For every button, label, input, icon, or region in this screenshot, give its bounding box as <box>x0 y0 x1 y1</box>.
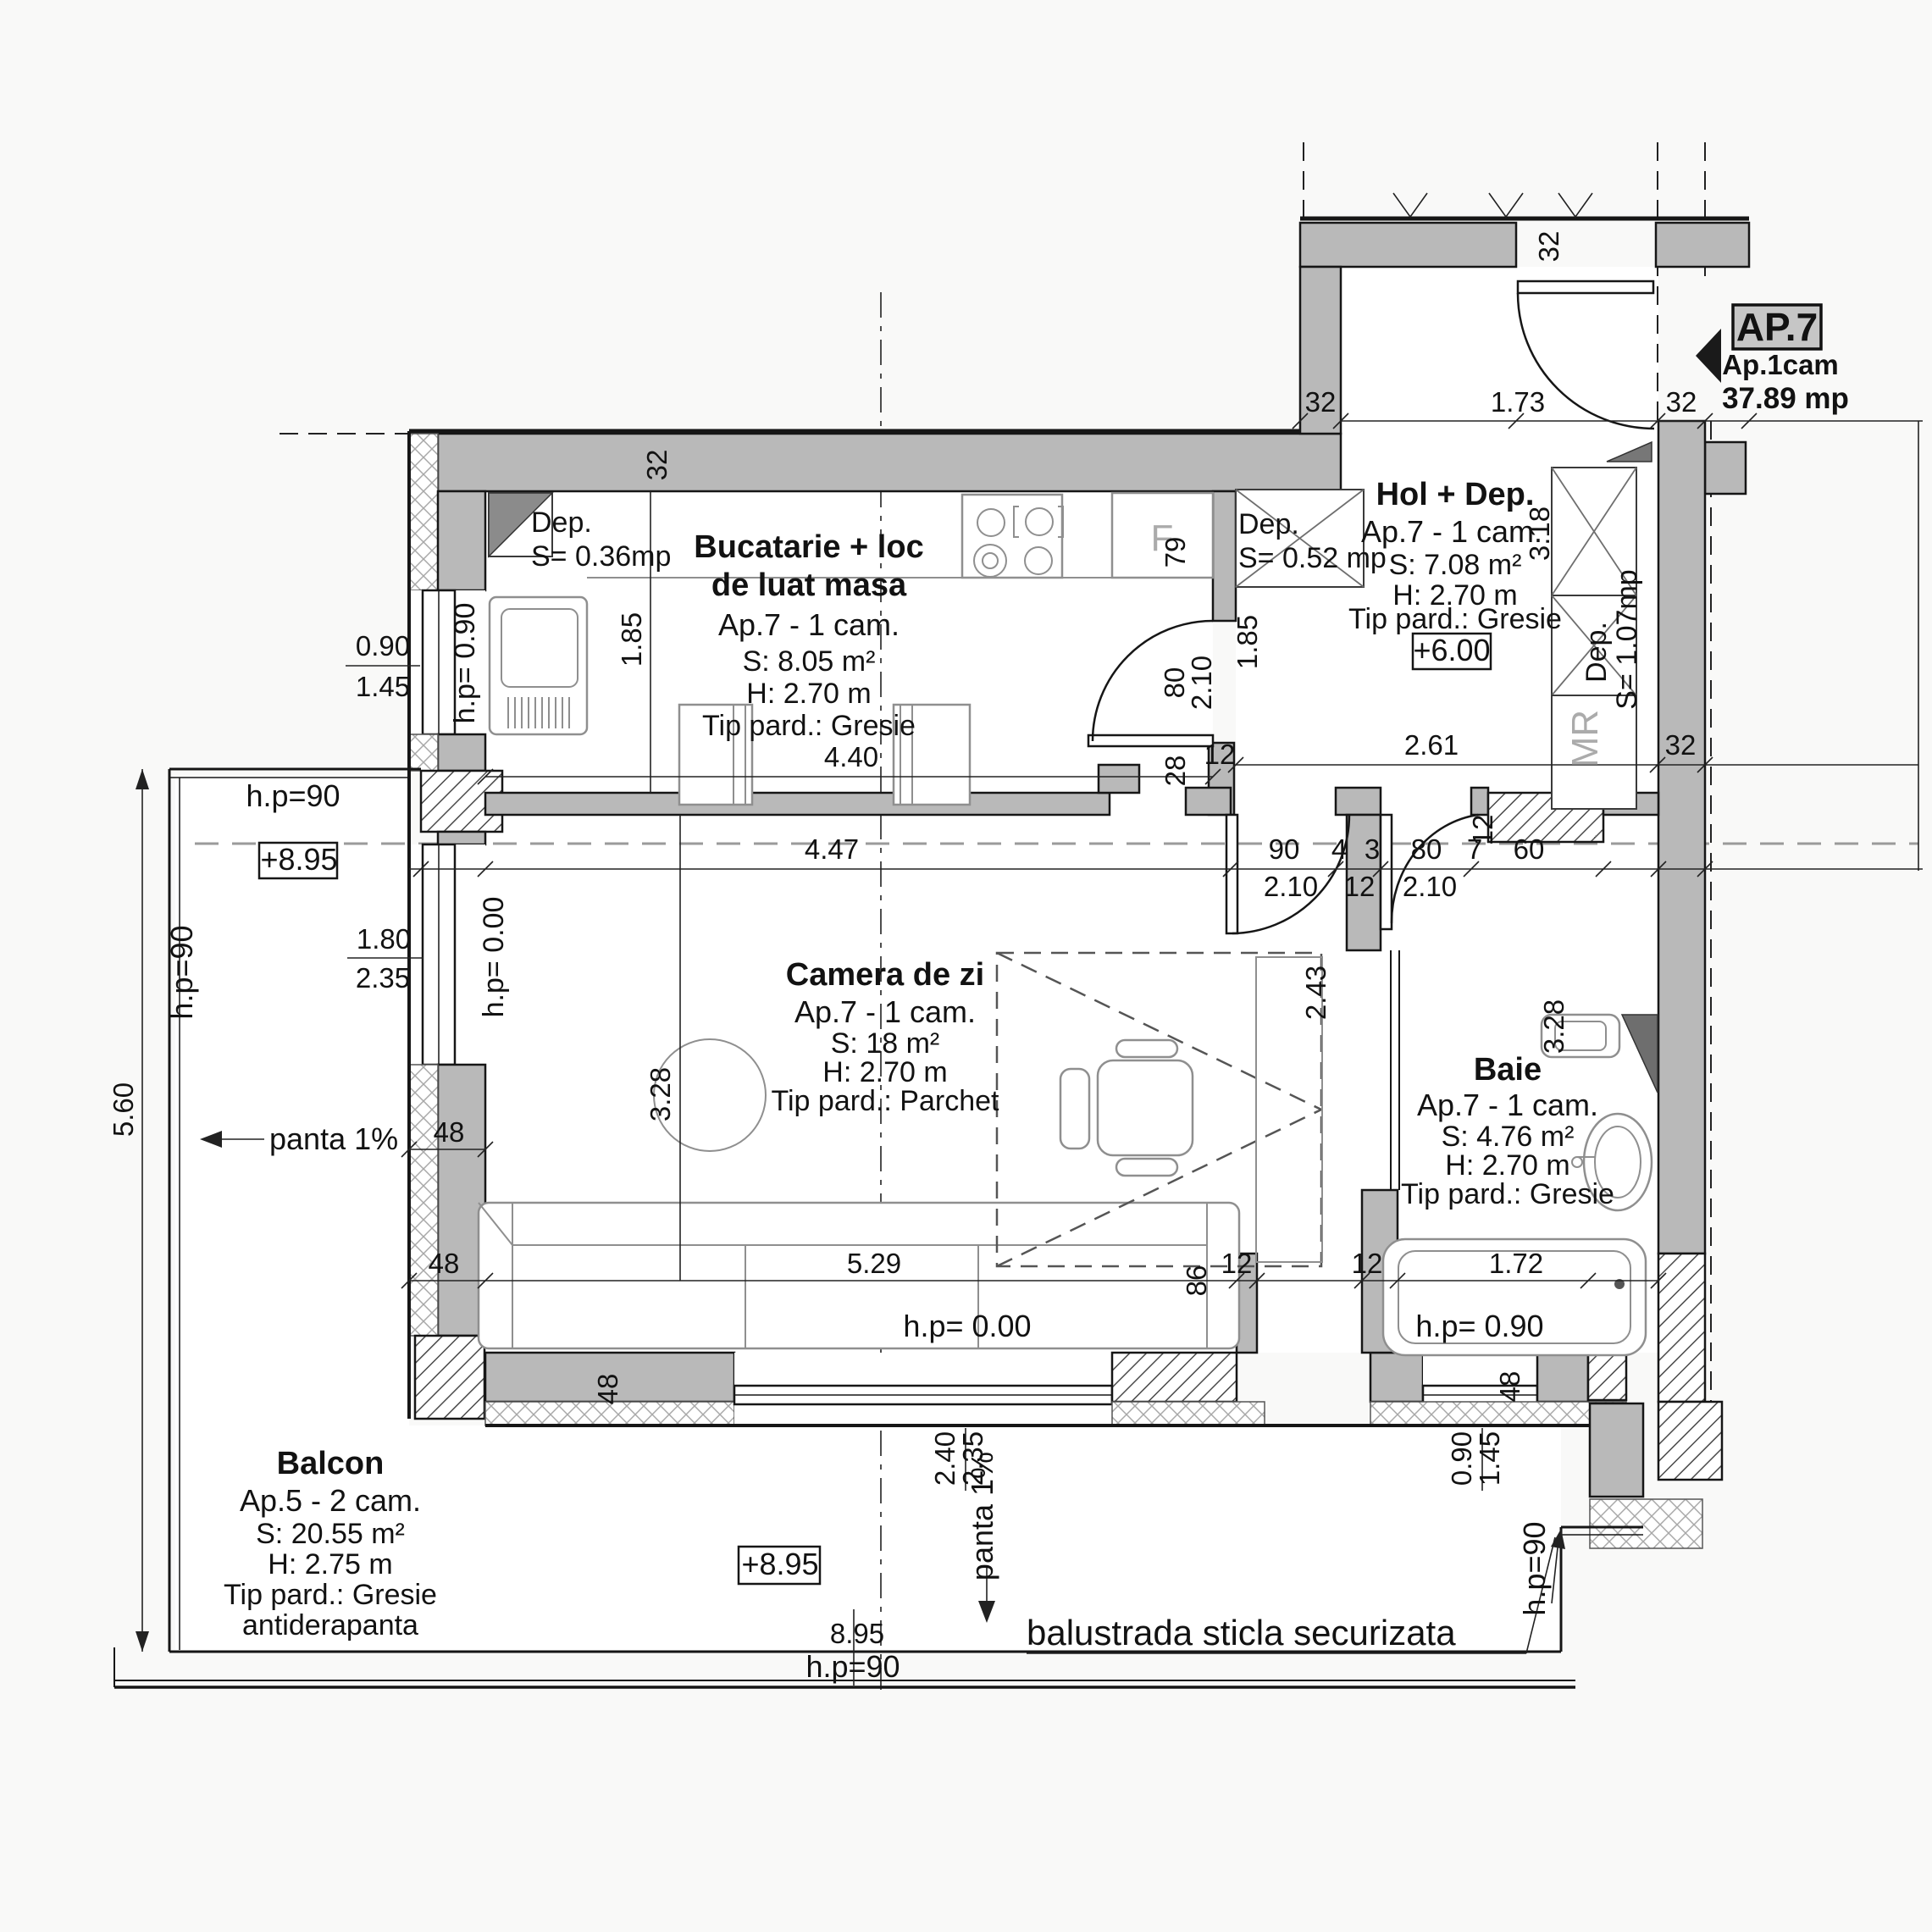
mr-label: MR <box>1564 710 1606 767</box>
dim-h-261: 2.61 <box>1404 729 1459 761</box>
kitchen-name-1: Bucatarie + loc <box>694 529 923 565</box>
dim-l-48a: 48 <box>429 1248 460 1279</box>
column-hatched-bottom <box>1112 1353 1237 1402</box>
hp90-right: h.p=90 <box>1517 1521 1552 1615</box>
dim-m-12a: 12 <box>1344 871 1376 902</box>
floor-plan-page: F <box>0 0 1932 1932</box>
marker-code: AP.7 <box>1736 305 1818 349</box>
hp90-balcony-top: h.p=90 <box>246 778 340 813</box>
hol-apt: Ap.7 - 1 cam. <box>1361 514 1542 549</box>
living-apt: Ap.7 - 1 cam. <box>794 994 976 1029</box>
dim-m-60: 60 <box>1514 833 1545 865</box>
dim-b-48: 48 <box>1494 1371 1525 1403</box>
wall-kitchen-hol <box>1213 491 1236 621</box>
hp-000-living: h.p= 0.00 <box>903 1309 1031 1343</box>
dim-kw-145: 1.45 <box>356 671 410 702</box>
hp-090-bath: h.p= 0.90 <box>1415 1309 1543 1343</box>
dim-m-210b: 2.10 <box>1403 871 1457 902</box>
dim-bw-145: 1.45 <box>1474 1431 1505 1486</box>
bath-floor: Tip pard.: Gresie <box>1401 1178 1614 1210</box>
dep1-area: S= 0.36mp <box>531 540 671 573</box>
balcony-floor-1: Tip pard.: Gresie <box>224 1579 437 1611</box>
bath-apt: Ap.7 - 1 cam. <box>1417 1088 1598 1122</box>
dim-b-172: 1.72 <box>1489 1248 1543 1279</box>
living-window-bottom <box>734 1353 1112 1425</box>
dim-h-318: 3.18 <box>1524 507 1555 561</box>
kitchen-height: H: 2.70 m <box>746 678 871 710</box>
dep3-area: S= 1.07mp <box>1611 569 1643 709</box>
dim-l-243: 2.43 <box>1300 966 1331 1020</box>
balcony-apt: Ap.5 - 2 cam. <box>240 1483 421 1518</box>
dim-l-240: 2.40 <box>929 1431 960 1486</box>
balcony-height: H: 2.75 m <box>268 1548 392 1580</box>
dim-l-12a: 12 <box>1221 1248 1253 1279</box>
wall-entrance-right <box>1656 223 1749 267</box>
dim-m-447: 4.47 <box>805 833 859 865</box>
dim-entrance-32: 32 <box>1533 231 1564 263</box>
dim-k-440: 4.40 <box>824 741 878 772</box>
dim-lw-235: 2.35 <box>356 962 410 994</box>
kitchen-name-2: de luat masa <box>711 567 907 603</box>
dim-top-32r: 32 <box>1666 386 1697 418</box>
dim-l-86: 86 <box>1181 1265 1212 1297</box>
wall-top-kitchen <box>438 434 1341 491</box>
balustrade-note: balustrada sticla securizata <box>1027 1613 1456 1652</box>
dim-k-79: 79 <box>1160 537 1191 568</box>
dim-l-12b: 12 <box>1352 1248 1383 1279</box>
dim-l-48b: 48 <box>434 1116 465 1148</box>
kitchen-apt: Ap.7 - 1 cam. <box>718 607 900 642</box>
dim-kw-090: 0.90 <box>356 630 410 662</box>
dim-m-210a: 2.10 <box>1264 871 1318 902</box>
hol-level: +6.00 <box>1413 633 1490 667</box>
balcony-floor-2: antiderapanta <box>242 1609 418 1641</box>
dim-h-185: 1.85 <box>1232 615 1263 669</box>
marker-unit: Ap.1cam <box>1722 349 1839 380</box>
dim-bot-895: 8.95 <box>830 1618 884 1649</box>
dim-l-235: 2.35 <box>957 1431 988 1486</box>
dim-k-12: 12 <box>1204 739 1236 770</box>
level-bottom: +8.95 <box>741 1547 818 1581</box>
dim-m-3: 3 <box>1365 833 1380 865</box>
panta-left: panta 1% <box>269 1121 398 1156</box>
bath-name: Baie <box>1474 1052 1542 1088</box>
dim-b-328: 3.28 <box>1538 999 1569 1054</box>
wall-right <box>1658 421 1705 1254</box>
dim-l-529: 5.29 <box>847 1248 901 1279</box>
balcony-name: Balcon <box>277 1446 385 1481</box>
dim-bw-090: 0.90 <box>1446 1431 1477 1486</box>
dim-k-28: 28 <box>1160 756 1191 787</box>
dim-l-328: 3.28 <box>645 1067 676 1121</box>
balcony-area: S: 20.55 m² <box>256 1518 405 1550</box>
hol-floor: Tip pard.: Gresie <box>1348 603 1562 635</box>
bath-height: H: 2.70 m <box>1445 1149 1569 1182</box>
column-hatched-left-bottom <box>415 1336 484 1419</box>
dim-m-4: 4 <box>1331 833 1347 865</box>
hp90-bottom: h.p=90 <box>805 1649 900 1684</box>
stove <box>962 495 1063 578</box>
dep2-name: Dep. <box>1238 508 1299 540</box>
dep2-area: S= 0.52 mp <box>1238 542 1387 574</box>
dim-k-210: 2.10 <box>1186 656 1217 710</box>
hp90-left: h.p=90 <box>164 925 199 1019</box>
marker-area: 37.89 mp <box>1722 382 1849 415</box>
hp-090-kitchen: h.p= 0.90 <box>449 603 481 724</box>
living-height: H: 2.70 m <box>822 1056 947 1088</box>
wall-living-top <box>485 793 1110 815</box>
bath-area: S: 4.76 m² <box>1442 1121 1575 1153</box>
wall-entrance-left <box>1300 223 1516 267</box>
living-floor: Tip pard.: Parchet <box>772 1085 1000 1117</box>
dim-l-48c: 48 <box>592 1374 623 1405</box>
hp-000-living-window: h.p= 0.00 <box>478 897 510 1018</box>
dim-lw-180: 1.80 <box>357 923 411 955</box>
floor-plan-drawing: F <box>0 0 1932 1932</box>
living-area: S: 18 m² <box>831 1027 939 1060</box>
dim-k-185: 1.85 <box>616 612 647 667</box>
living-window-left <box>409 844 485 1065</box>
dim-m-80: 80 <box>1411 833 1442 865</box>
wall-pilaster <box>1705 442 1746 494</box>
dim-h-32: 32 <box>1665 729 1697 761</box>
dep1-name: Dep. <box>531 507 592 539</box>
kitchen-area: S: 8.05 m² <box>743 645 876 678</box>
dim-m-90: 90 <box>1269 833 1300 865</box>
living-name: Camera de zi <box>786 957 984 993</box>
dim-top-173: 1.73 <box>1491 386 1545 418</box>
washing-machine <box>490 597 587 734</box>
dim-top-32l: 32 <box>1305 386 1337 418</box>
hol-area: S: 7.08 m² <box>1389 549 1522 581</box>
level-top: +8.95 <box>260 842 337 877</box>
dep3-name: Dep. <box>1580 622 1613 683</box>
dim-kitchen-wall-32: 32 <box>641 450 673 481</box>
kitchen-floor: Tip pard.: Gresie <box>702 710 916 742</box>
hol-name: Hol + Dep. <box>1376 477 1535 512</box>
dim-v-560: 5.60 <box>108 1082 139 1137</box>
dim-m-12b: 12 <box>1467 815 1498 846</box>
